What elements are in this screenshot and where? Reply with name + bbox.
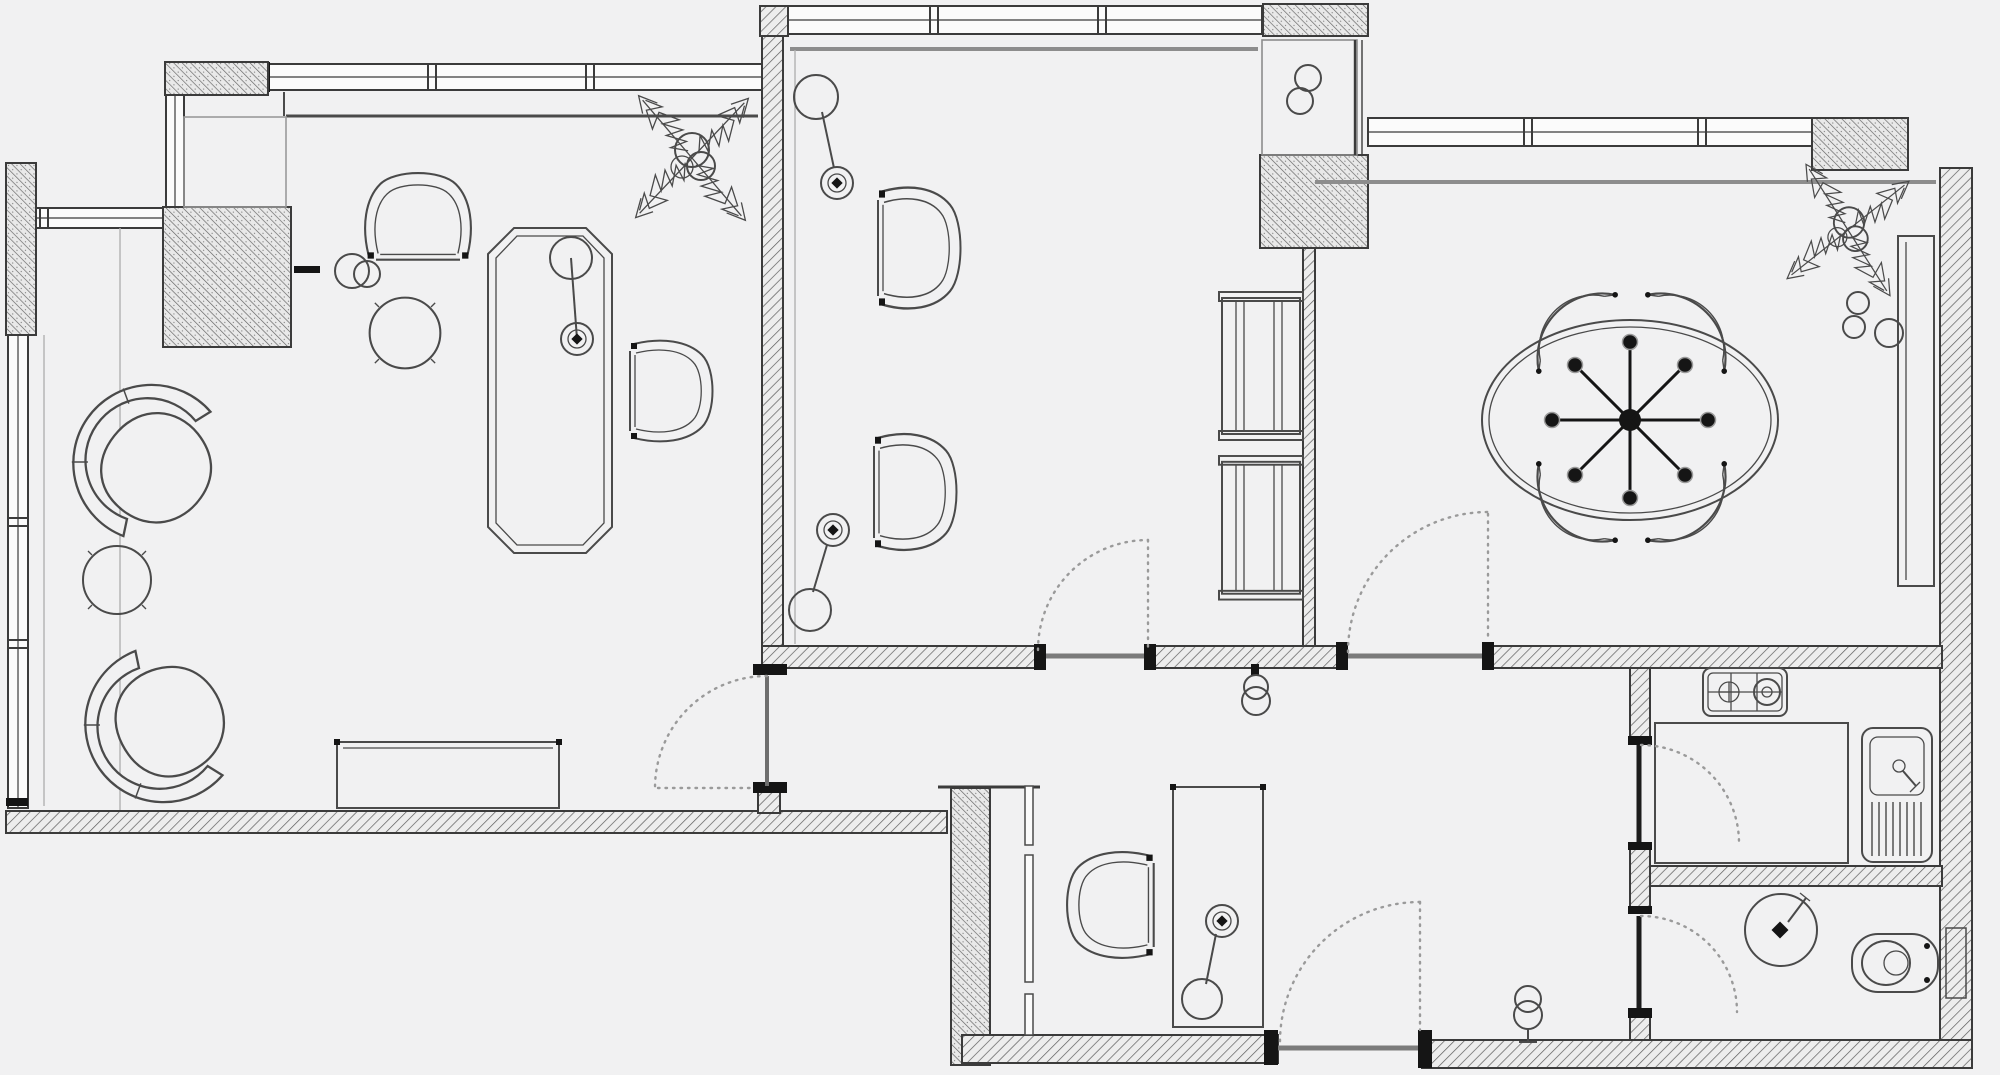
wall-lounge-door-stub [758, 792, 780, 813]
wall-kitchen-bath-jamb [1630, 846, 1650, 910]
wall-deskroom-south [962, 1035, 1278, 1063]
wall-column-study [1260, 155, 1368, 248]
wall-kitchen-bath-divider [1650, 866, 1942, 886]
wall-kitchen-west-upper [1630, 668, 1650, 744]
wall-lounge-south [6, 811, 947, 833]
wall-divider-study-dining [1303, 248, 1315, 646]
wall-deskroom-west [1025, 786, 1033, 1035]
lounge-corner-window-horizontal [26, 208, 166, 228]
wall-block-dining-ne [1812, 118, 1908, 170]
wall-study-south-left [762, 646, 1044, 668]
wall-bottom-right [1422, 1040, 1972, 1068]
lounge-corner-window-vertical [166, 95, 184, 207]
dining-top-window [1368, 118, 1812, 146]
plan-background [0, 0, 2000, 1075]
wall-dining-south [1490, 646, 1942, 668]
floor-plan-drawing [0, 0, 2000, 1075]
wall-study-west [762, 36, 783, 668]
wall-hall-pillar [951, 788, 990, 1065]
wall-study-south-right [1150, 646, 1346, 668]
chandelier-icon [1545, 335, 1716, 506]
study-top-window [788, 6, 1262, 34]
wall-block-study-ne [1263, 4, 1368, 36]
lounge-top-window [265, 62, 762, 92]
lounge-left-window [6, 335, 28, 808]
wall-block-top-left [165, 62, 268, 95]
floor-plan-canvas [0, 0, 2000, 1075]
wall-study-nw-cap [760, 6, 788, 36]
wall-pier-left [6, 163, 36, 335]
wall-radiator-icon [1946, 928, 1966, 998]
wall-column-lounge [163, 207, 291, 347]
